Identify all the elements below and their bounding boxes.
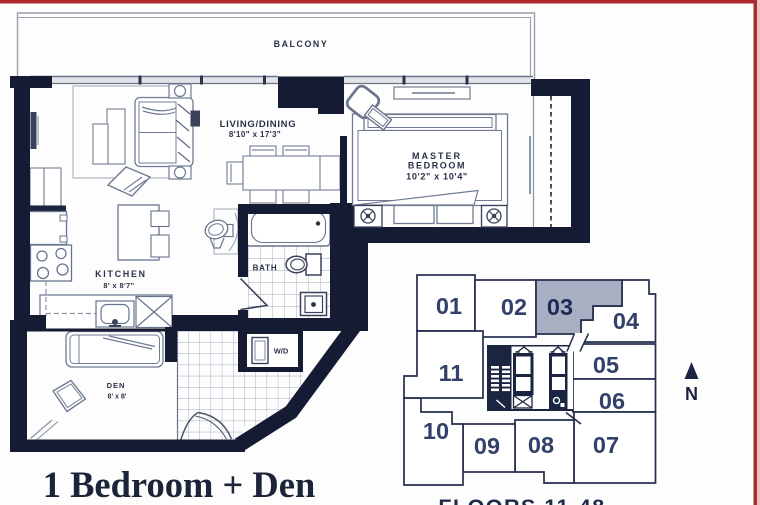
svg-text:07: 07	[593, 432, 619, 458]
svg-text:10: 10	[423, 418, 449, 444]
svg-text:02: 02	[501, 294, 527, 320]
svg-text:11: 11	[439, 360, 464, 386]
svg-text:01: 01	[436, 293, 462, 319]
svg-text:LIVING/DINING: LIVING/DINING	[220, 119, 297, 130]
svg-text:N: N	[685, 384, 698, 404]
svg-text:05: 05	[593, 352, 619, 378]
svg-text:8' x 8': 8' x 8'	[108, 394, 127, 401]
svg-text:03: 03	[547, 294, 573, 320]
svg-text:DEN: DEN	[107, 381, 126, 390]
svg-text:06: 06	[599, 388, 625, 414]
svg-text:04: 04	[613, 308, 639, 334]
svg-text:8' x 8'7": 8' x 8'7"	[103, 281, 134, 290]
svg-text:10'2" x 10'4": 10'2" x 10'4"	[406, 172, 468, 182]
svg-text:08: 08	[528, 432, 554, 458]
svg-text:FLOORS 11-48: FLOORS 11-48	[438, 495, 605, 505]
svg-text:09: 09	[474, 433, 500, 459]
svg-text:8'10" x 17'3": 8'10" x 17'3"	[229, 130, 281, 139]
svg-text:MASTER: MASTER	[412, 151, 462, 161]
svg-text:BALCONY: BALCONY	[274, 39, 329, 49]
svg-text:1 Bedroom + Den: 1 Bedroom + Den	[43, 464, 316, 505]
svg-text:BATH: BATH	[253, 264, 278, 273]
svg-text:W/D: W/D	[274, 347, 289, 356]
svg-text:BEDROOM: BEDROOM	[408, 161, 466, 171]
svg-text:KITCHEN: KITCHEN	[95, 269, 147, 279]
